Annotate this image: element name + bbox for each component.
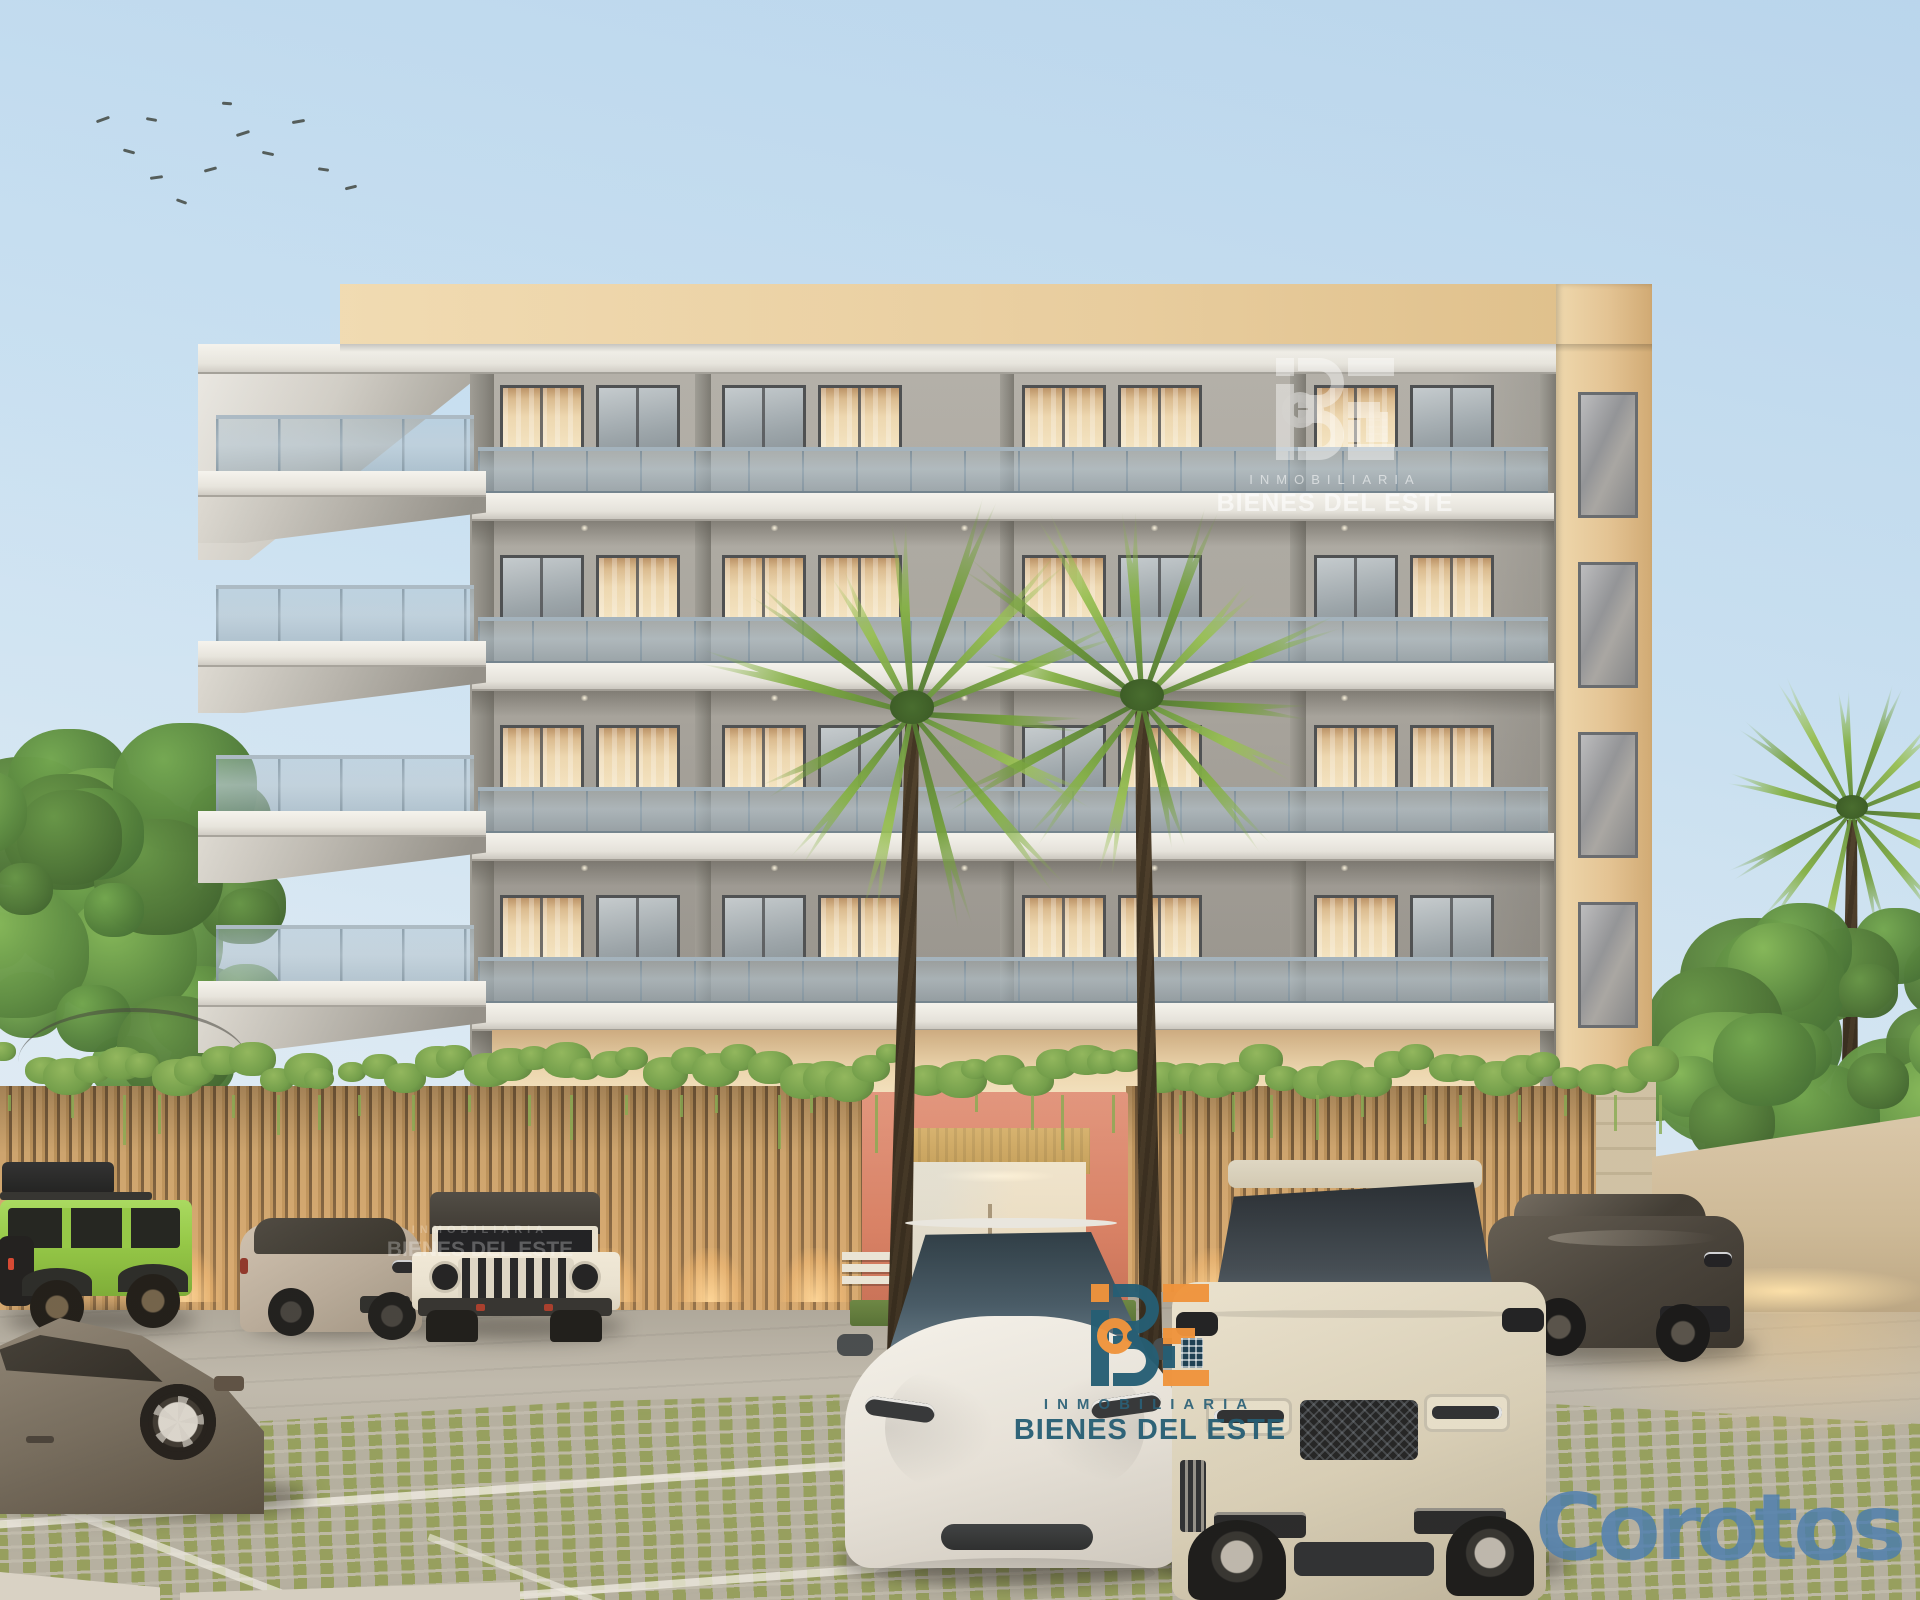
window-unit (818, 895, 902, 961)
soffit-downlight (1340, 695, 1349, 701)
headlight (1704, 1252, 1732, 1267)
window-unit (500, 725, 584, 791)
balcony-slab (198, 471, 486, 497)
window-unit (1578, 562, 1638, 688)
spoke-detail (152, 1396, 204, 1448)
render-scene: INMOBILIARIA BIENES DEL ESTE INMOBILIARI… (0, 0, 1920, 1600)
vehicle-luxury-suv-champagne (1172, 1160, 1546, 1600)
wheel (268, 1288, 314, 1336)
vine-strand (1518, 1095, 1521, 1122)
soffit-downlight (580, 695, 589, 701)
fence-uplight-glow (675, 1248, 745, 1302)
window-mullion (1158, 558, 1161, 618)
side-mirror (1502, 1308, 1544, 1332)
headlight-strip (1432, 1406, 1502, 1419)
window-unit (722, 555, 806, 621)
window-mullion (1062, 728, 1065, 788)
grille-slots (458, 1258, 574, 1300)
window-mullion (540, 728, 543, 788)
vine-strand (123, 1095, 126, 1145)
wheel (550, 1310, 602, 1342)
window-unit (1314, 725, 1398, 791)
vine-strand (1112, 1095, 1115, 1133)
vine-strand (412, 1095, 415, 1131)
headlight (572, 1264, 598, 1290)
front-grille (1300, 1400, 1418, 1460)
fender-vent (1180, 1460, 1206, 1532)
window-mullion (762, 898, 765, 958)
fence-uplight-glow (780, 1248, 850, 1302)
window-unit (722, 385, 806, 451)
vehicle-suv-light-gray (240, 1214, 424, 1340)
window-unit (722, 895, 806, 961)
hood-crease (1035, 1366, 1145, 1486)
tree-canopy (1847, 1053, 1909, 1109)
slab-soffit-shadow (472, 521, 1554, 551)
side-mirror (1176, 1312, 1218, 1336)
window-mullion (1354, 388, 1357, 448)
window-pillar (122, 1208, 131, 1248)
window-unit (1410, 895, 1494, 961)
vine-strand (1424, 1095, 1427, 1124)
soffit-downlight (960, 525, 969, 531)
vehicle-offroad-suv-white (404, 1192, 628, 1342)
vine-strand (1061, 1095, 1064, 1150)
tree-canopy (84, 883, 144, 937)
window-unit (1118, 385, 1202, 451)
hood-line (1190, 1310, 1528, 1318)
vine-strand (1179, 1095, 1182, 1134)
window-mullion (1450, 728, 1453, 788)
window-unit (500, 555, 584, 621)
tree-canopy (0, 863, 53, 915)
soffit-downlight (770, 695, 779, 701)
glass-railing (216, 585, 474, 641)
vine-strand (680, 1095, 683, 1117)
roof-panel (1228, 1160, 1482, 1188)
roof-rack (0, 1192, 152, 1200)
window-mullion (762, 388, 765, 448)
soffit-downlight (1150, 525, 1159, 531)
window-mullion (540, 558, 543, 618)
wheel (426, 1310, 478, 1342)
vine-strand (318, 1095, 321, 1130)
vine-strand (1659, 1095, 1662, 1134)
hood-crease (885, 1368, 995, 1488)
soffit-downlight (1340, 865, 1349, 871)
vine-strand (810, 1095, 813, 1113)
window-unit (1314, 895, 1398, 961)
window-unit (1314, 555, 1398, 621)
vine-strand (1564, 1095, 1567, 1116)
window-mullion (1062, 898, 1065, 958)
vine-hedge (304, 1068, 334, 1090)
vine-strand (1361, 1095, 1364, 1117)
window-mullion (1354, 728, 1357, 788)
window-mullion (540, 388, 543, 448)
window-mullion (636, 558, 639, 618)
vine-strand (232, 1095, 235, 1118)
window-unit (596, 725, 680, 791)
soffit-downlight (1340, 525, 1349, 531)
balcony-slab (198, 981, 486, 1007)
tail-lamp (240, 1258, 248, 1274)
glass-railing (478, 957, 1548, 1003)
tree-canopy (1839, 964, 1899, 1018)
window-unit (1022, 385, 1106, 451)
window-unit (1578, 902, 1638, 1028)
window-band (8, 1208, 180, 1248)
palm-crown-core (890, 690, 935, 724)
vine-hedge (1110, 1049, 1142, 1072)
glass-railing (478, 447, 1548, 493)
window-unit (1022, 895, 1106, 961)
window-mullion (1062, 388, 1065, 448)
window-mullion (1450, 898, 1453, 958)
wheel (1188, 1520, 1286, 1600)
roof-cargo-box (2, 1162, 114, 1196)
soffit-downlight (580, 525, 589, 531)
vine-strand (277, 1095, 280, 1135)
vine-strand (358, 1095, 361, 1116)
window-unit (500, 895, 584, 961)
vine-strand (715, 1095, 718, 1113)
window-unit (596, 895, 680, 961)
glass-railing (478, 617, 1548, 663)
window-mullion (540, 898, 543, 958)
vine-strand (570, 1095, 573, 1140)
window-unit (1314, 385, 1398, 451)
lower-bumper (1294, 1542, 1434, 1576)
vine-strand (975, 1095, 978, 1112)
vine-hedge (1628, 1046, 1679, 1083)
vine-strand (8, 1095, 11, 1111)
palm-crown-core (1120, 679, 1163, 711)
window-unit (1578, 392, 1638, 518)
hood-highlight (1548, 1230, 1718, 1246)
building-cream-band (340, 284, 1652, 346)
bumper-shadow (875, 1558, 1155, 1588)
glass-railing (216, 415, 474, 471)
door-handle (26, 1436, 54, 1443)
wheel (1656, 1304, 1710, 1362)
vine-strand (625, 1095, 628, 1115)
window-mullion (1158, 898, 1161, 958)
window-mullion (636, 388, 639, 448)
vehicle-boxy-suv-lime (0, 1162, 196, 1338)
soffit-downlight (960, 865, 969, 871)
soffit-downlight (770, 525, 779, 531)
balcony-slab (198, 641, 486, 667)
window-mullion (1158, 388, 1161, 448)
tail-lamp (8, 1258, 14, 1270)
headlight (432, 1264, 458, 1290)
vine-strand (528, 1095, 531, 1126)
tow-hook (476, 1304, 485, 1311)
glass-railing (216, 755, 474, 811)
vine-strand (778, 1095, 781, 1149)
window-unit (1578, 732, 1638, 858)
building-band-shadow (340, 344, 1652, 352)
window-pillar (62, 1208, 71, 1248)
window-mullion (858, 388, 861, 448)
side-mirror (837, 1334, 873, 1356)
vine-strand (158, 1095, 161, 1134)
vine-strand (1232, 1095, 1235, 1132)
glass-railing (216, 925, 474, 981)
window-mullion (1450, 558, 1453, 618)
lower-intake (941, 1524, 1093, 1550)
headlight-strip (1214, 1410, 1284, 1423)
wheel (1446, 1516, 1534, 1596)
balcony-slab (198, 811, 486, 837)
tow-hook (544, 1304, 553, 1311)
window-mullion (636, 898, 639, 958)
tree-canopy (1713, 1013, 1816, 1105)
balcony-slab (472, 1003, 1554, 1031)
window-unit (818, 385, 902, 451)
vine-strand (1031, 1095, 1034, 1130)
window-mullion (762, 728, 765, 788)
window-unit (596, 555, 680, 621)
window-unit (1410, 725, 1494, 791)
vine-strand (1316, 1095, 1319, 1140)
window-unit (500, 385, 584, 451)
vine-strand (468, 1095, 471, 1112)
window-mullion (1354, 558, 1357, 618)
vine-strand (1614, 1095, 1617, 1131)
window-unit (596, 385, 680, 451)
window-mullion (1354, 898, 1357, 958)
window-mullion (1450, 388, 1453, 448)
window-mullion (858, 898, 861, 958)
slab-soffit-shadow (472, 861, 1554, 891)
window-unit (1410, 555, 1494, 621)
window-mullion (636, 728, 639, 788)
window-unit (1410, 385, 1494, 451)
vine-strand (71, 1095, 74, 1118)
vine-strand (1459, 1095, 1462, 1127)
roof-line (905, 1218, 1117, 1228)
vine-strand (1270, 1095, 1273, 1138)
soffit-downlight (770, 865, 779, 871)
glass-band (254, 1218, 406, 1254)
window-unit (1118, 895, 1202, 961)
vehicle-sedan-dark (0, 1318, 264, 1518)
soffit-downlight (580, 865, 589, 871)
balcony-slab (472, 493, 1554, 521)
vine-strand (875, 1095, 878, 1153)
vehicle-crossover-pearl (845, 1218, 1181, 1590)
side-mirror (214, 1376, 244, 1391)
